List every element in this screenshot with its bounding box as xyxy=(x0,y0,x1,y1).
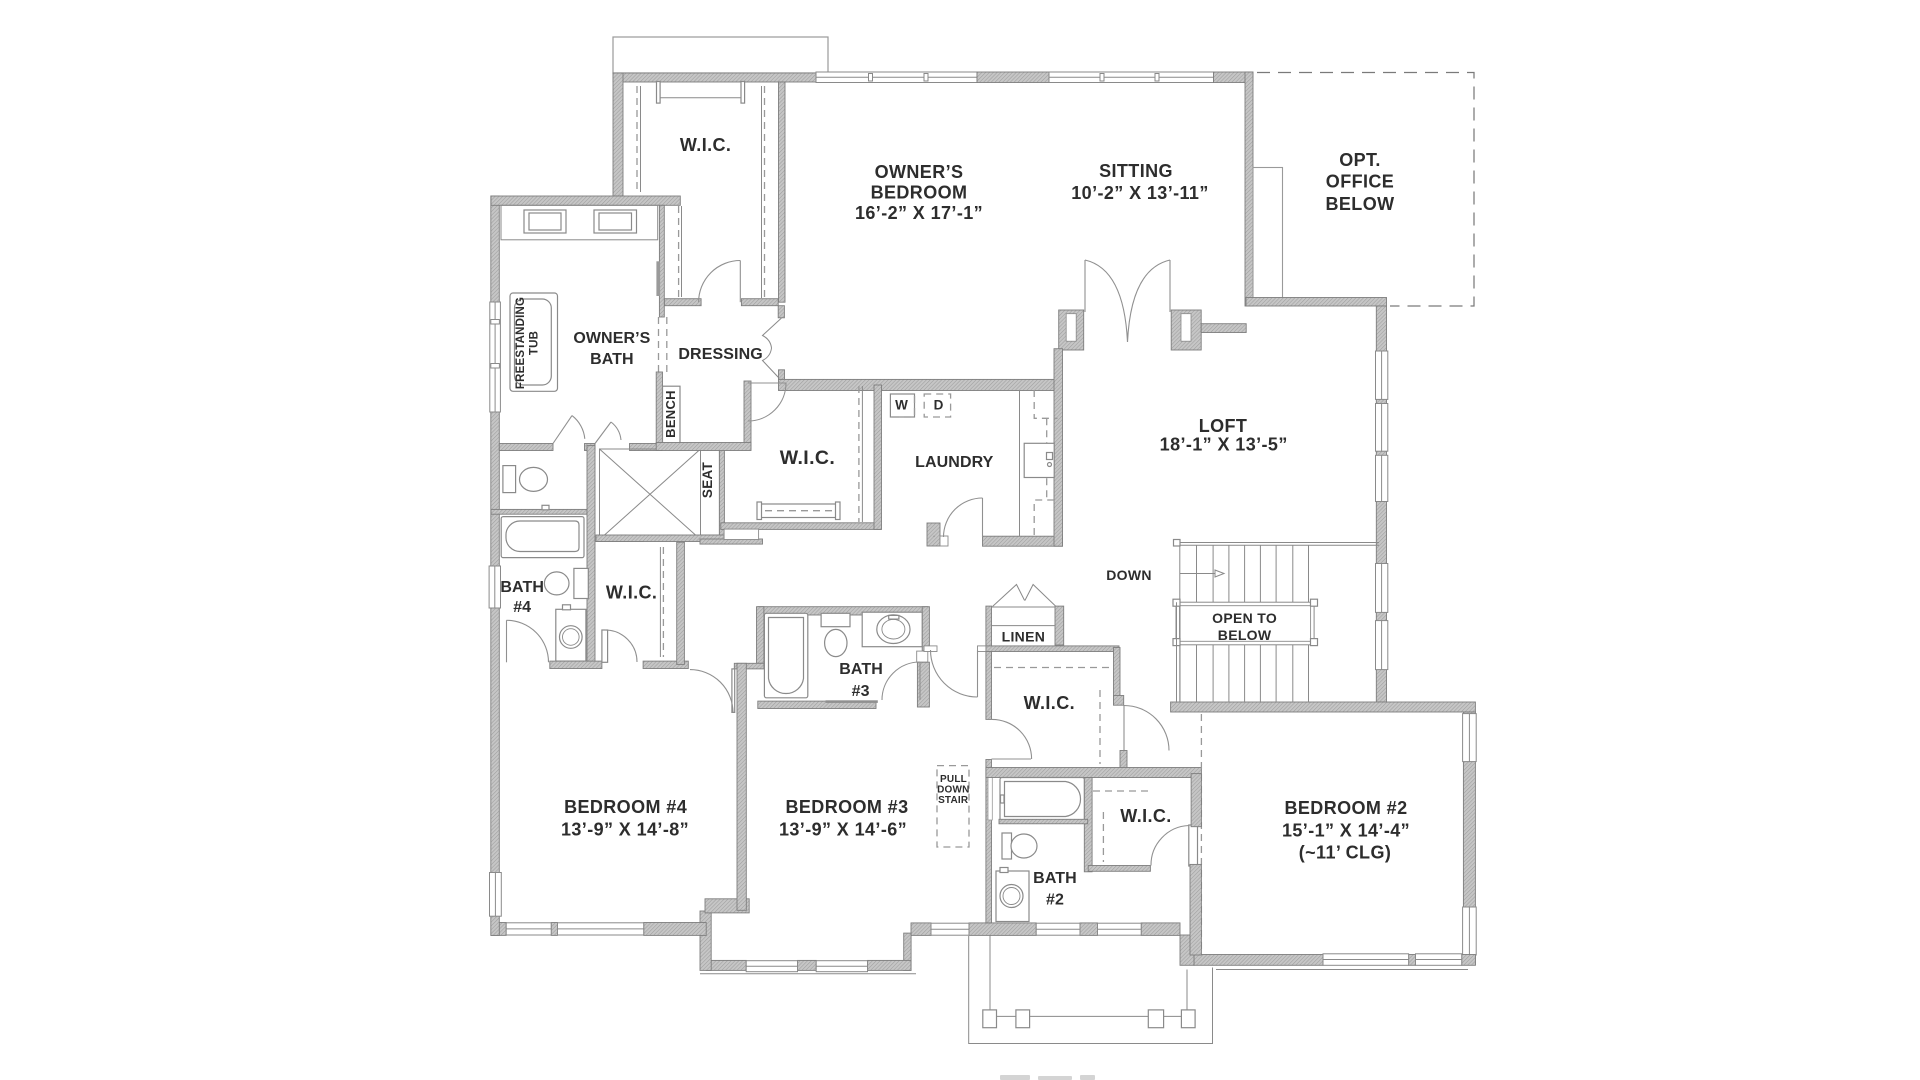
svg-text:OWNER’S: OWNER’S xyxy=(875,162,964,182)
svg-text:W: W xyxy=(895,398,908,413)
svg-text:DOWN: DOWN xyxy=(1106,567,1152,583)
svg-text:LINEN: LINEN xyxy=(1002,629,1046,645)
svg-text:DOWN: DOWN xyxy=(937,784,969,795)
svg-text:BEDROOM: BEDROOM xyxy=(871,183,968,203)
svg-text:SEAT: SEAT xyxy=(700,461,715,498)
svg-text:W.I.C.: W.I.C. xyxy=(680,135,731,155)
svg-text:OPEN TO: OPEN TO xyxy=(1212,610,1277,626)
svg-text:10’-2” X 13’-11”: 10’-2” X 13’-11” xyxy=(1071,183,1208,203)
svg-text:13’-9” X 14’-8”: 13’-9” X 14’-8” xyxy=(561,820,689,840)
svg-text:#3: #3 xyxy=(852,683,870,700)
svg-text:BELOW: BELOW xyxy=(1326,194,1395,214)
svg-text:D: D xyxy=(934,398,944,413)
svg-text:13’-9” X 14’-6”: 13’-9” X 14’-6” xyxy=(779,820,907,840)
svg-text:BEDROOM #3: BEDROOM #3 xyxy=(785,797,908,817)
svg-text:BATH: BATH xyxy=(590,351,634,368)
svg-text:16’-2” X 17’-1”: 16’-2” X 17’-1” xyxy=(855,203,983,223)
svg-text:BEDROOM #4: BEDROOM #4 xyxy=(564,797,687,817)
svg-text:OWNER’S: OWNER’S xyxy=(573,330,650,347)
svg-text:SITTING: SITTING xyxy=(1099,161,1173,181)
svg-text:STAIR: STAIR xyxy=(938,795,969,806)
svg-text:#2: #2 xyxy=(1046,892,1064,909)
svg-text:BATH: BATH xyxy=(839,661,883,678)
svg-text:(~11’ CLG): (~11’ CLG) xyxy=(1299,842,1392,862)
svg-text:DRESSING: DRESSING xyxy=(678,346,762,363)
svg-text:#4: #4 xyxy=(513,599,531,616)
svg-text:TUB: TUB xyxy=(529,331,541,355)
svg-text:15’-1” X 14’-4”: 15’-1” X 14’-4” xyxy=(1282,821,1410,841)
svg-text:W.I.C.: W.I.C. xyxy=(780,447,835,469)
svg-text:W.I.C.: W.I.C. xyxy=(1024,693,1075,713)
svg-text:LAUNDRY: LAUNDRY xyxy=(915,454,994,471)
svg-text:W.I.C.: W.I.C. xyxy=(606,583,657,603)
svg-text:OFFICE: OFFICE xyxy=(1326,172,1394,192)
svg-text:FREESTANDING: FREESTANDING xyxy=(515,297,527,389)
svg-text:18’-1” X 13’-5”: 18’-1” X 13’-5” xyxy=(1160,434,1288,454)
svg-text:BEDROOM #2: BEDROOM #2 xyxy=(1284,798,1407,818)
svg-text:W.I.C.: W.I.C. xyxy=(1120,806,1171,826)
svg-text:LOFT: LOFT xyxy=(1199,416,1248,436)
svg-text:BATH: BATH xyxy=(1033,870,1077,887)
svg-text:OPT.: OPT. xyxy=(1339,150,1381,170)
svg-text:BENCH: BENCH xyxy=(663,390,678,438)
svg-text:BELOW: BELOW xyxy=(1218,627,1272,643)
svg-text:BATH: BATH xyxy=(500,579,544,596)
